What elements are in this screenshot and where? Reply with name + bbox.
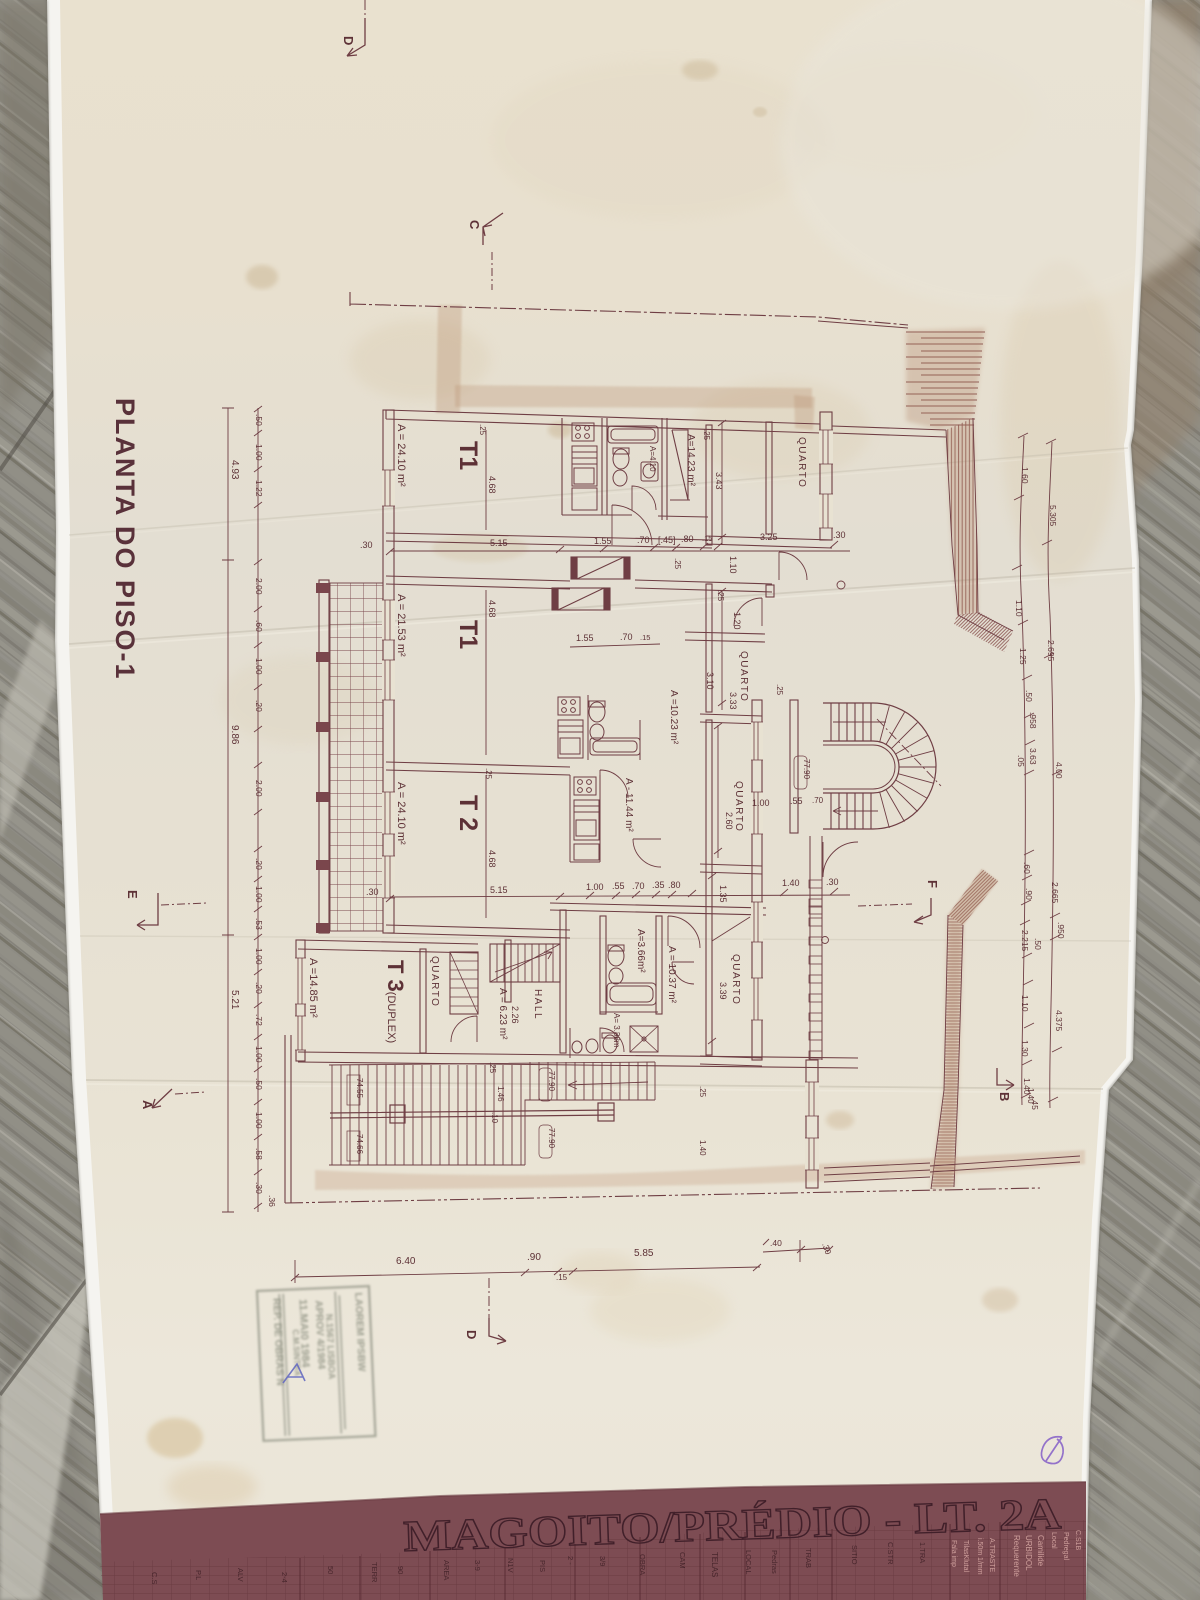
svg-text:5.15: 5.15 xyxy=(490,885,508,895)
svg-text:.30: .30 xyxy=(833,530,846,540)
svg-text:1.55: 1.55 xyxy=(576,633,594,643)
svg-text:1.00: 1.00 xyxy=(586,882,604,892)
svg-text:Fala imp: Fala imp xyxy=(950,1540,957,1567)
svg-text:.25: .25 xyxy=(698,1086,707,1098)
svg-text:.70: .70 xyxy=(812,796,824,805)
svg-text:C.STR: C.STR xyxy=(886,1542,895,1565)
svg-text:D: D xyxy=(464,1330,479,1339)
svg-text:2.00: 2.00 xyxy=(254,780,264,797)
svg-text:1.20: 1.20 xyxy=(732,612,742,630)
svg-text:2.60: 2.60 xyxy=(724,812,734,830)
svg-text:5.15: 5.15 xyxy=(490,538,508,548)
svg-text:QUARTO: QUARTO xyxy=(738,651,749,702)
svg-text:Camilide: Camilide xyxy=(1036,1535,1045,1567)
svg-text:74.55: 74.55 xyxy=(355,1078,364,1099)
svg-text:.72: .72 xyxy=(254,1014,264,1026)
svg-text:1.10: 1.10 xyxy=(1020,995,1030,1012)
svg-text:.90: .90 xyxy=(1024,888,1034,900)
svg-text:PLANTA DO PISO-1: PLANTA DO PISO-1 xyxy=(110,398,140,681)
svg-text:74.66: 74.66 xyxy=(355,1134,364,1155)
svg-text:1.46: 1.46 xyxy=(496,1086,505,1102)
svg-text:A=4.10: A=4.10 xyxy=(648,446,657,472)
svg-text:Requerente: Requerente xyxy=(1012,1535,1021,1577)
svg-text:.25: .25 xyxy=(702,429,711,441)
svg-text:OBRA: OBRA xyxy=(638,1554,647,1575)
svg-text:1.10: 1.10 xyxy=(728,556,738,574)
svg-text:TRAB: TRAB xyxy=(804,1548,813,1568)
svg-text:A: A xyxy=(140,1100,155,1110)
svg-text:1.60: 1.60 xyxy=(1020,467,1030,484)
svg-text:C.S: C.S xyxy=(150,1572,159,1585)
svg-text:A = 24.10 m²: A = 24.10 m² xyxy=(395,424,407,487)
svg-text:Local: Local xyxy=(1050,1532,1057,1549)
svg-text:.90: .90 xyxy=(527,1252,541,1263)
svg-text:URBIDOL: URBIDOL xyxy=(1024,1535,1033,1571)
svg-text:3.63: 3.63 xyxy=(1028,748,1038,765)
svg-text:i.50m 1/mm: i.50m 1/mm xyxy=(976,1538,983,1575)
svg-text:4.68: 4.68 xyxy=(487,850,497,868)
svg-text:.35: .35 xyxy=(652,880,665,890)
svg-text:P.L: P.L xyxy=(194,1570,203,1580)
svg-text:.30: .30 xyxy=(254,1182,264,1194)
svg-text:F: F xyxy=(925,880,940,888)
svg-text:.53: .53 xyxy=(254,918,264,930)
svg-text:.25: .25 xyxy=(673,558,682,570)
svg-text:QUARTO: QUARTO xyxy=(429,956,440,1007)
svg-text:T1: T1 xyxy=(454,441,482,470)
svg-text:.55: .55 xyxy=(790,796,803,806)
svg-text:ALV: ALV xyxy=(236,1568,245,1582)
svg-text:3-9: 3-9 xyxy=(473,1560,482,1571)
svg-text:.40: .40 xyxy=(770,1238,782,1248)
svg-text:.25: .25 xyxy=(775,684,784,696)
svg-text:PIS: PIS xyxy=(538,1560,547,1572)
svg-text:.20: .20 xyxy=(254,700,264,712)
svg-text:A=3.66m²: A=3.66m² xyxy=(635,929,646,973)
svg-text:.958: .958 xyxy=(1028,712,1038,729)
svg-text:D: D xyxy=(341,36,356,45)
svg-text:4.00: 4.00 xyxy=(1054,762,1064,779)
svg-text:.50: .50 xyxy=(254,414,264,426)
svg-text:.05: .05 xyxy=(1016,755,1026,767)
svg-text:B: B xyxy=(997,1092,1012,1101)
svg-text:QUARTO: QUARTO xyxy=(796,437,807,488)
svg-text:77.90: 77.90 xyxy=(547,1128,556,1149)
svg-text:.950: .950 xyxy=(1056,922,1066,939)
svg-text:1.22: 1.22 xyxy=(254,480,264,497)
svg-text:.25: .25 xyxy=(484,768,493,780)
svg-text:LOCAL: LOCAL xyxy=(744,1550,753,1575)
svg-text:2.695: 2.695 xyxy=(1046,640,1056,662)
svg-text:.15: .15 xyxy=(556,1273,568,1282)
svg-text:1.35: 1.35 xyxy=(718,885,728,903)
svg-text:C: C xyxy=(467,220,482,230)
svg-text:A = 24.10 m²: A = 24.10 m² xyxy=(395,782,407,845)
svg-text:2.215: 2.215 xyxy=(1020,930,1030,952)
svg-text:3.43: 3.43 xyxy=(714,472,724,490)
svg-text:.20: .20 xyxy=(254,982,264,994)
svg-text:1.25: 1.25 xyxy=(1018,648,1028,665)
svg-text:.80: .80 xyxy=(681,534,694,544)
svg-text:5.305: 5.305 xyxy=(1048,505,1058,527)
svg-text:.70: .70 xyxy=(637,535,650,545)
svg-text:1.40: 1.40 xyxy=(698,1140,707,1156)
svg-text:1.40: 1.40 xyxy=(782,878,800,888)
svg-text:CAM: CAM xyxy=(678,1552,687,1569)
svg-text:2 -: 2 - xyxy=(566,1556,575,1565)
svg-text:1.00: 1.00 xyxy=(254,1046,264,1063)
svg-text:.58: .58 xyxy=(254,1148,264,1160)
svg-text:1.00: 1.00 xyxy=(254,948,264,965)
svg-text:90: 90 xyxy=(396,1566,405,1574)
svg-text:Pedras: Pedras xyxy=(770,1550,779,1574)
svg-text:A = 10.37 m²: A = 10.37 m² xyxy=(666,946,677,1004)
svg-text:E: E xyxy=(125,890,140,899)
svg-text:A =10.23 m²: A =10.23 m² xyxy=(668,690,679,745)
svg-text:T 2: T 2 xyxy=(454,795,482,831)
svg-text:[.45]: [.45] xyxy=(658,535,676,545)
svg-text:1.00: 1.00 xyxy=(254,886,264,903)
svg-text:.70: .70 xyxy=(632,881,645,891)
svg-text:77.90: 77.90 xyxy=(802,759,811,780)
svg-text:A - 11.44 m²: A - 11.44 m² xyxy=(623,778,634,832)
svg-text:9.86: 9.86 xyxy=(229,725,240,745)
svg-text:.25: .25 xyxy=(488,1062,497,1074)
svg-text:A= 3.38m: A= 3.38m xyxy=(612,1013,621,1048)
svg-text:3.25: 3.25 xyxy=(760,532,778,542)
svg-text:1.10: 1.10 xyxy=(1014,600,1024,617)
svg-text:TERR: TERR xyxy=(370,1562,379,1583)
svg-text:1.00: 1.00 xyxy=(254,658,264,675)
svg-text:Pedregal: Pedregal xyxy=(1062,1532,1069,1560)
svg-text:3.10: 3.10 xyxy=(705,672,715,690)
svg-text:6.40: 6.40 xyxy=(396,1256,416,1267)
svg-text:T1: T1 xyxy=(454,620,482,649)
svg-text:.30: .30 xyxy=(366,887,379,897)
svg-text:.36: .36 xyxy=(267,1195,277,1207)
svg-text:4.68: 4.68 xyxy=(487,476,497,494)
svg-text:77.90: 77.90 xyxy=(547,1071,556,1092)
svg-text:C.S1B: C.S1B xyxy=(1074,1530,1081,1551)
svg-text:.10: .10 xyxy=(490,1112,499,1124)
svg-text:HALL: HALL xyxy=(532,989,543,1020)
svg-text:.80: .80 xyxy=(668,880,681,890)
svg-text:.30: .30 xyxy=(360,540,373,550)
svg-text:5.85: 5.85 xyxy=(634,1248,654,1259)
svg-text:2-4: 2-4 xyxy=(280,1572,289,1583)
svg-text:A =14.85 m²: A =14.85 m² xyxy=(307,958,319,1018)
svg-text:.50: .50 xyxy=(1024,690,1034,702)
svg-text:A = 6.23 m²: A = 6.23 m² xyxy=(497,988,508,1040)
svg-text:QUARTO: QUARTO xyxy=(730,954,741,1005)
svg-text:N1V: N1V xyxy=(506,1558,515,1573)
svg-text:A=14.23 m²: A=14.23 m² xyxy=(685,434,696,487)
svg-text:.50: .50 xyxy=(1033,938,1043,950)
svg-text:SITIO: SITIO xyxy=(850,1545,859,1565)
svg-text:.60: .60 xyxy=(254,620,264,632)
svg-text:1.30: 1.30 xyxy=(1020,1040,1030,1057)
svg-text:3.33: 3.33 xyxy=(728,692,738,710)
svg-text:2.26: 2.26 xyxy=(510,1006,520,1024)
svg-text:.50: .50 xyxy=(254,1078,264,1090)
svg-text:3.39: 3.39 xyxy=(718,982,728,1000)
svg-text:1.00: 1.00 xyxy=(752,798,770,808)
svg-text:50: 50 xyxy=(326,1566,335,1574)
svg-text:2.665: 2.665 xyxy=(1050,882,1060,904)
svg-text:TELAS: TELAS xyxy=(710,1552,719,1577)
svg-text:4.93: 4.93 xyxy=(229,460,240,480)
svg-text:.20: .20 xyxy=(254,858,264,870)
svg-text:.60: .60 xyxy=(1022,862,1032,874)
svg-text:1.00: 1.00 xyxy=(254,444,264,461)
svg-text:3/9: 3/9 xyxy=(598,1556,607,1566)
svg-text:1.TRA: 1.TRA xyxy=(918,1542,927,1563)
svg-text:AREA: AREA xyxy=(442,1560,451,1580)
svg-text:.15: .15 xyxy=(640,633,650,642)
svg-text:.70: .70 xyxy=(620,632,633,642)
svg-text:1.55: 1.55 xyxy=(594,536,612,546)
svg-text:4.375: 4.375 xyxy=(1054,1010,1064,1032)
svg-text:1.40: 1.40 xyxy=(1026,1088,1035,1104)
svg-text:1.00: 1.00 xyxy=(254,1112,264,1129)
svg-text:.15: .15 xyxy=(702,534,712,543)
svg-text:A.TRASTE: A.TRASTE xyxy=(988,1538,995,1573)
svg-text:A = 21.53 m²: A = 21.53 m² xyxy=(395,594,407,657)
svg-text:.30: .30 xyxy=(826,877,839,887)
svg-text:5.21: 5.21 xyxy=(229,990,240,1010)
svg-text:.55: .55 xyxy=(612,881,625,891)
svg-text:2.00: 2.00 xyxy=(254,578,264,595)
svg-text:TilasKlutal: TilasKlutal xyxy=(962,1540,969,1572)
svg-text:4.68: 4.68 xyxy=(487,600,497,618)
